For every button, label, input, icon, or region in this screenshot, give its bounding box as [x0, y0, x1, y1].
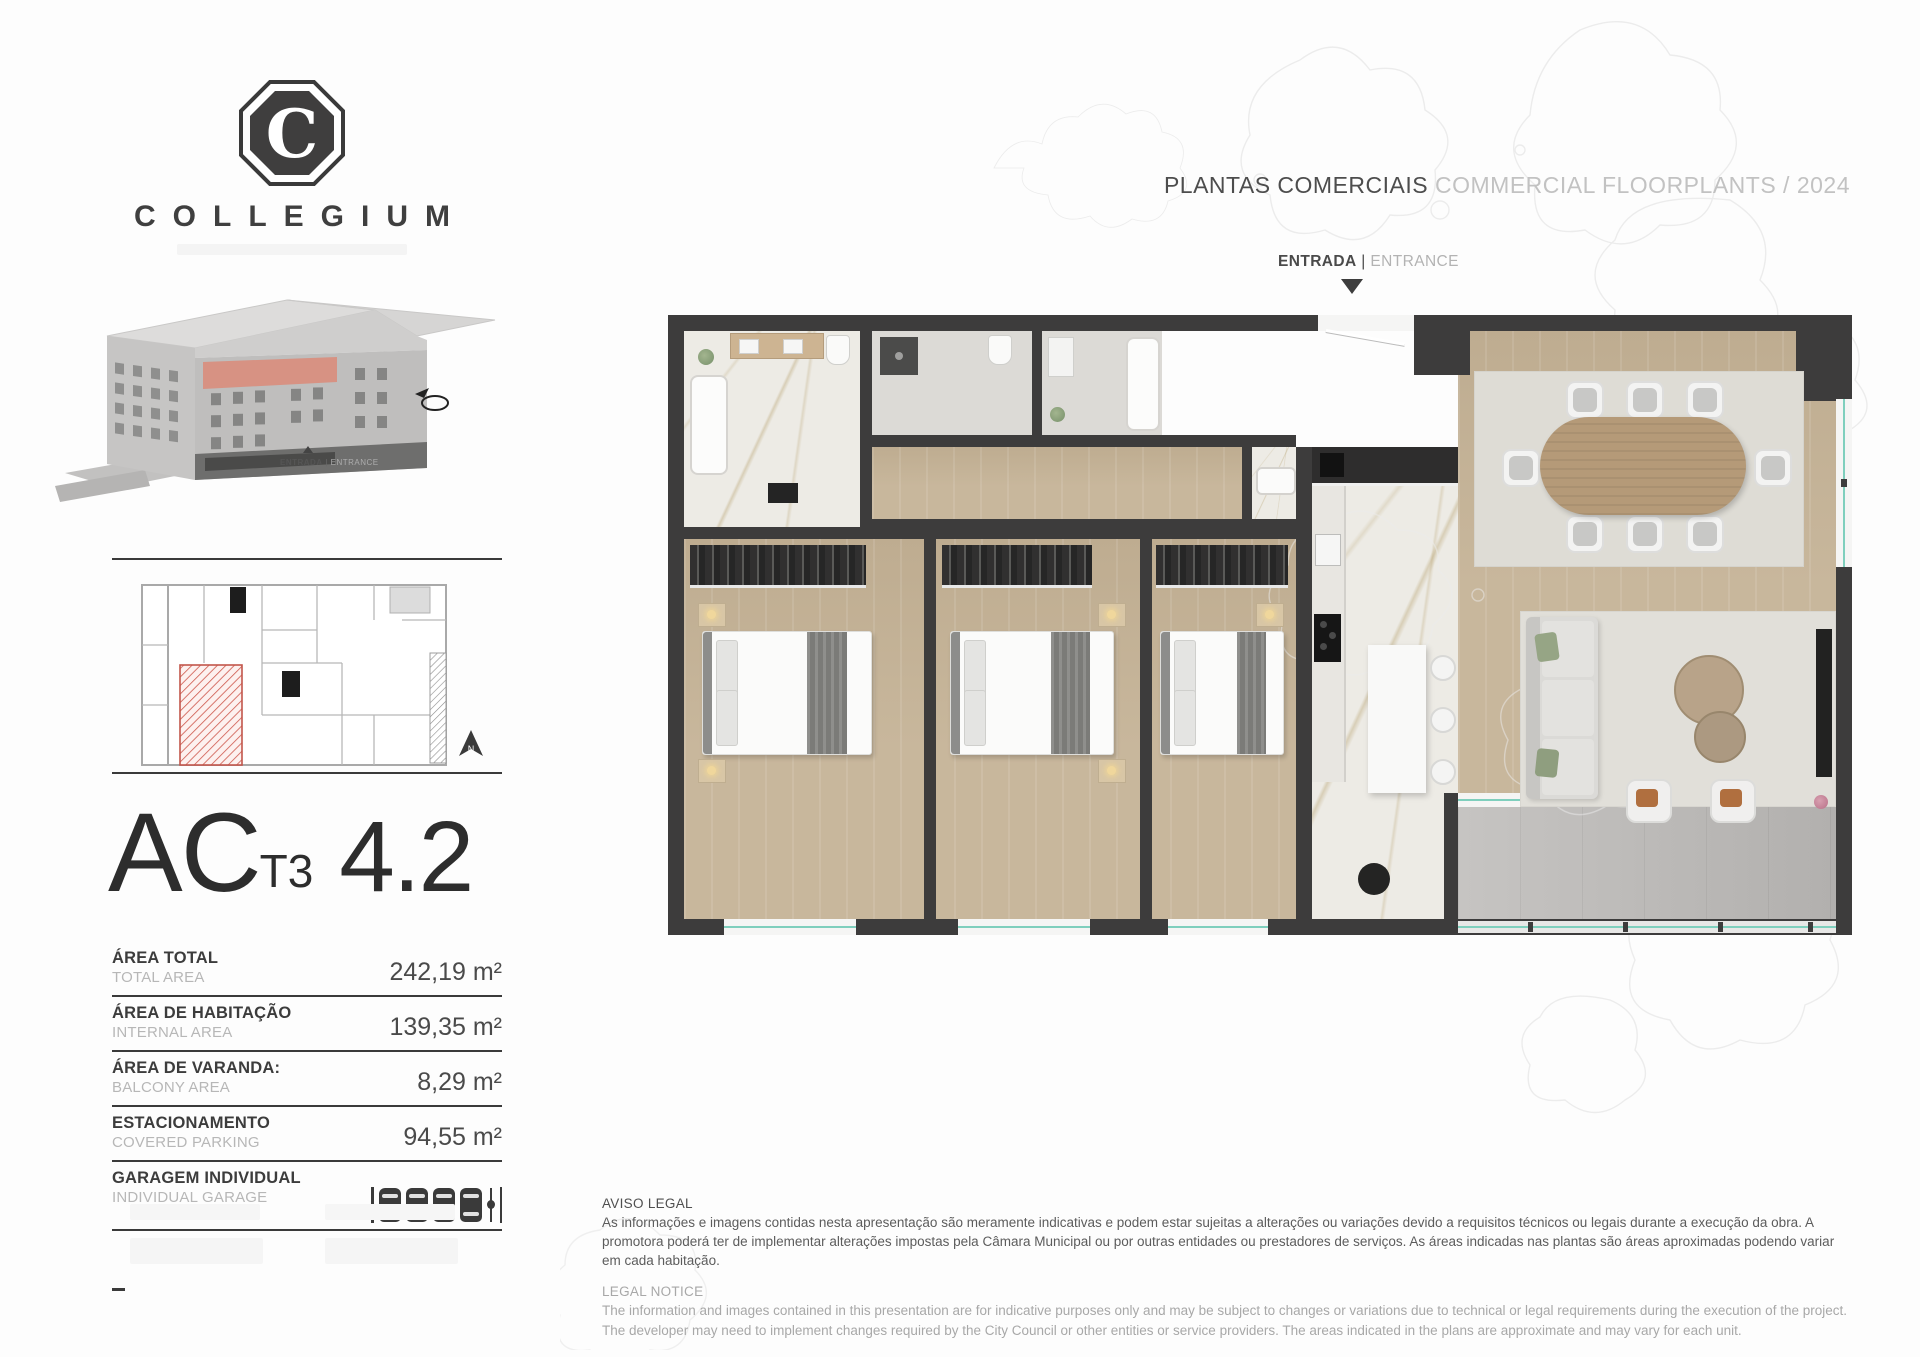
divider-mid — [112, 772, 502, 774]
dining-chair — [1626, 515, 1664, 553]
table-row: ESTACIONAMENTO COVERED PARKING 94,55 m² — [112, 1105, 502, 1160]
kitchen-island — [1368, 645, 1426, 793]
flower-plant — [1814, 795, 1828, 809]
bed-bedroom1 — [702, 631, 872, 755]
wall-bedwing-kitchen — [1296, 447, 1312, 919]
entrance-label: ENTRADA | ENTRANCE — [1278, 253, 1459, 271]
header-title-en: COMMERCIAL FLOORPLANTS / 2024 — [1435, 172, 1850, 198]
partner-logo-faint — [325, 1204, 455, 1220]
brand-block: C COLLEGIUM — [92, 78, 492, 255]
cooktop — [1314, 614, 1341, 662]
wardrobe-bedroom1 — [690, 545, 866, 588]
bathtub-3 — [1126, 337, 1160, 431]
dining-chair — [1686, 515, 1724, 553]
building-entrance-marker-icon — [303, 446, 313, 453]
dining-chair — [1566, 515, 1604, 553]
key-plan-unit-highlight — [180, 665, 242, 765]
partner-logo-faint — [130, 1238, 263, 1264]
entrance-door-leaf — [1326, 329, 1405, 346]
partner-logo-faint — [130, 1204, 260, 1220]
key-plan-gray-hatch — [430, 653, 446, 763]
dining-chair — [1754, 449, 1792, 487]
area-value: 94,55 m² — [403, 1123, 502, 1152]
table-bottom-rule — [112, 1229, 502, 1231]
toilet-1 — [826, 335, 850, 365]
svg-text:N: N — [468, 744, 475, 754]
car-icon — [460, 1188, 482, 1222]
north-arrow-icon: N — [458, 728, 484, 758]
building-entrance-label: ENTRADA | ENTRANCE — [280, 458, 379, 467]
area-label-pt: GARAGEM INDIVIDUAL — [112, 1169, 502, 1188]
key-plan-core-2 — [282, 671, 300, 697]
sofa — [1526, 617, 1598, 799]
page-header: PLANTAS COMERCIAIS COMMERCIAL FLOORPLANT… — [1164, 172, 1850, 199]
toilet-2 — [988, 335, 1012, 365]
motorcycle-icon — [487, 1188, 495, 1222]
nightstand — [1098, 759, 1126, 783]
dining-table — [1540, 417, 1746, 515]
vanity-3 — [1048, 337, 1074, 377]
floorplan-brochure-page: C COLLEGIUM — [0, 0, 1920, 1357]
stool — [1430, 707, 1456, 733]
nightstand — [698, 759, 726, 783]
building-render: ENTRADA | ENTRANCE — [55, 258, 505, 518]
bed-bedroom2 — [950, 631, 1114, 755]
nightstand — [1256, 603, 1284, 627]
unit-title: ACT34.2 — [108, 788, 508, 917]
unit-number: 4.2 — [339, 801, 472, 913]
brand-name: COLLEGIUM — [92, 200, 492, 234]
dining-chair — [1502, 449, 1540, 487]
legal-notice: AVISO LEGAL As informações e imagens con… — [602, 1196, 1854, 1354]
kitchen-counter-top — [1312, 447, 1458, 486]
window-bedroom1 — [724, 919, 856, 935]
coffee-table-small — [1694, 711, 1746, 763]
armchair — [1710, 779, 1756, 823]
table-row: ÁREA DE VARANDA: BALCONY AREA 8,29 m² — [112, 1050, 502, 1105]
entrance-arrow-icon — [1341, 279, 1363, 294]
wall-left — [668, 315, 684, 935]
brand-tagline-faint — [177, 244, 407, 255]
legal-body-en: The information and images contained in … — [602, 1301, 1854, 1339]
entrance-closet — [1414, 331, 1470, 375]
wall-bedroom1-2 — [924, 539, 936, 919]
area-value: 242,19 m² — [389, 958, 502, 987]
legal-heading-en: LEGAL NOTICE — [602, 1284, 1854, 1299]
nightstand — [698, 603, 726, 627]
legal-heading-pt: AVISO LEGAL — [602, 1196, 1854, 1211]
nightstand — [1098, 603, 1126, 627]
wall-ensuite-left — [1242, 447, 1252, 519]
kitchen-sink — [1315, 534, 1341, 566]
dining-chair — [1566, 381, 1604, 419]
balcony-rail — [1458, 921, 1836, 933]
round-mat — [1358, 863, 1390, 895]
page-mark — [112, 1288, 125, 1291]
wall-baths-bottom — [872, 435, 1296, 447]
window-dining-right — [1836, 399, 1852, 567]
wardrobe-bedroom2 — [942, 545, 1092, 588]
key-plan-terrace — [390, 587, 430, 613]
plant-bath3 — [1050, 407, 1065, 422]
partner-logo-faint — [325, 1238, 458, 1264]
unit-code: AC — [108, 790, 260, 915]
key-plan-core-1 — [230, 587, 246, 613]
tv-unit — [1816, 629, 1832, 777]
window-bedroom2 — [958, 919, 1090, 935]
entrance-doorway — [1318, 315, 1414, 331]
wardrobe-bedroom3 — [1156, 545, 1288, 588]
kitchen-counter-left — [1312, 486, 1346, 782]
bathtub-ensuite — [1256, 467, 1296, 495]
wall-bath1-right — [860, 331, 872, 527]
plant-bath1 — [698, 349, 714, 365]
key-plan — [112, 575, 502, 770]
area-value: 8,29 m² — [417, 1068, 502, 1097]
dining-chair — [1626, 381, 1664, 419]
shower-2 — [880, 337, 918, 375]
balcony-floor — [1458, 807, 1836, 919]
stool — [1430, 655, 1456, 681]
sofa-pillow — [1535, 748, 1560, 778]
window-bedroom3 — [1168, 919, 1268, 935]
wall-balcony-left — [1444, 793, 1458, 919]
area-table: ÁREA TOTAL TOTAL AREA 242,19 m² ÁREA DE … — [112, 942, 502, 1231]
table-row: ÁREA DE HABITAÇÃO INTERNAL AREA 139,35 m… — [112, 995, 502, 1050]
wall-bedroom2-3 — [1140, 539, 1152, 919]
unit-type: T3 — [260, 845, 314, 897]
armchair — [1626, 779, 1672, 823]
area-value: 139,35 m² — [389, 1013, 502, 1042]
svg-text:C: C — [266, 95, 319, 173]
garage-bar-icon — [500, 1187, 503, 1223]
sofa-pillow — [1534, 632, 1560, 663]
wall-top — [668, 315, 1852, 331]
floorplan — [668, 315, 1852, 935]
hallway — [872, 447, 1242, 519]
bed-bedroom3 — [1160, 631, 1284, 755]
bathtub-1 — [690, 375, 728, 475]
table-row: ÁREA TOTAL TOTAL AREA 242,19 m² — [112, 942, 502, 995]
wall-bath2-3 — [1032, 331, 1042, 435]
legal-body-pt: As informações e imagens contidas nesta … — [602, 1213, 1854, 1270]
vanity-1 — [730, 333, 824, 359]
wall-bath1-bottom — [684, 527, 872, 539]
bath1-mat — [768, 483, 798, 503]
header-title-pt: PLANTAS COMERCIAIS — [1164, 172, 1428, 198]
divider-top — [112, 558, 502, 560]
dining-chair — [1686, 381, 1724, 419]
collegium-logo-icon: C — [237, 78, 347, 188]
wall-hall-bedrooms — [872, 519, 1296, 539]
compass-icon — [413, 386, 453, 412]
stool — [1430, 759, 1456, 785]
